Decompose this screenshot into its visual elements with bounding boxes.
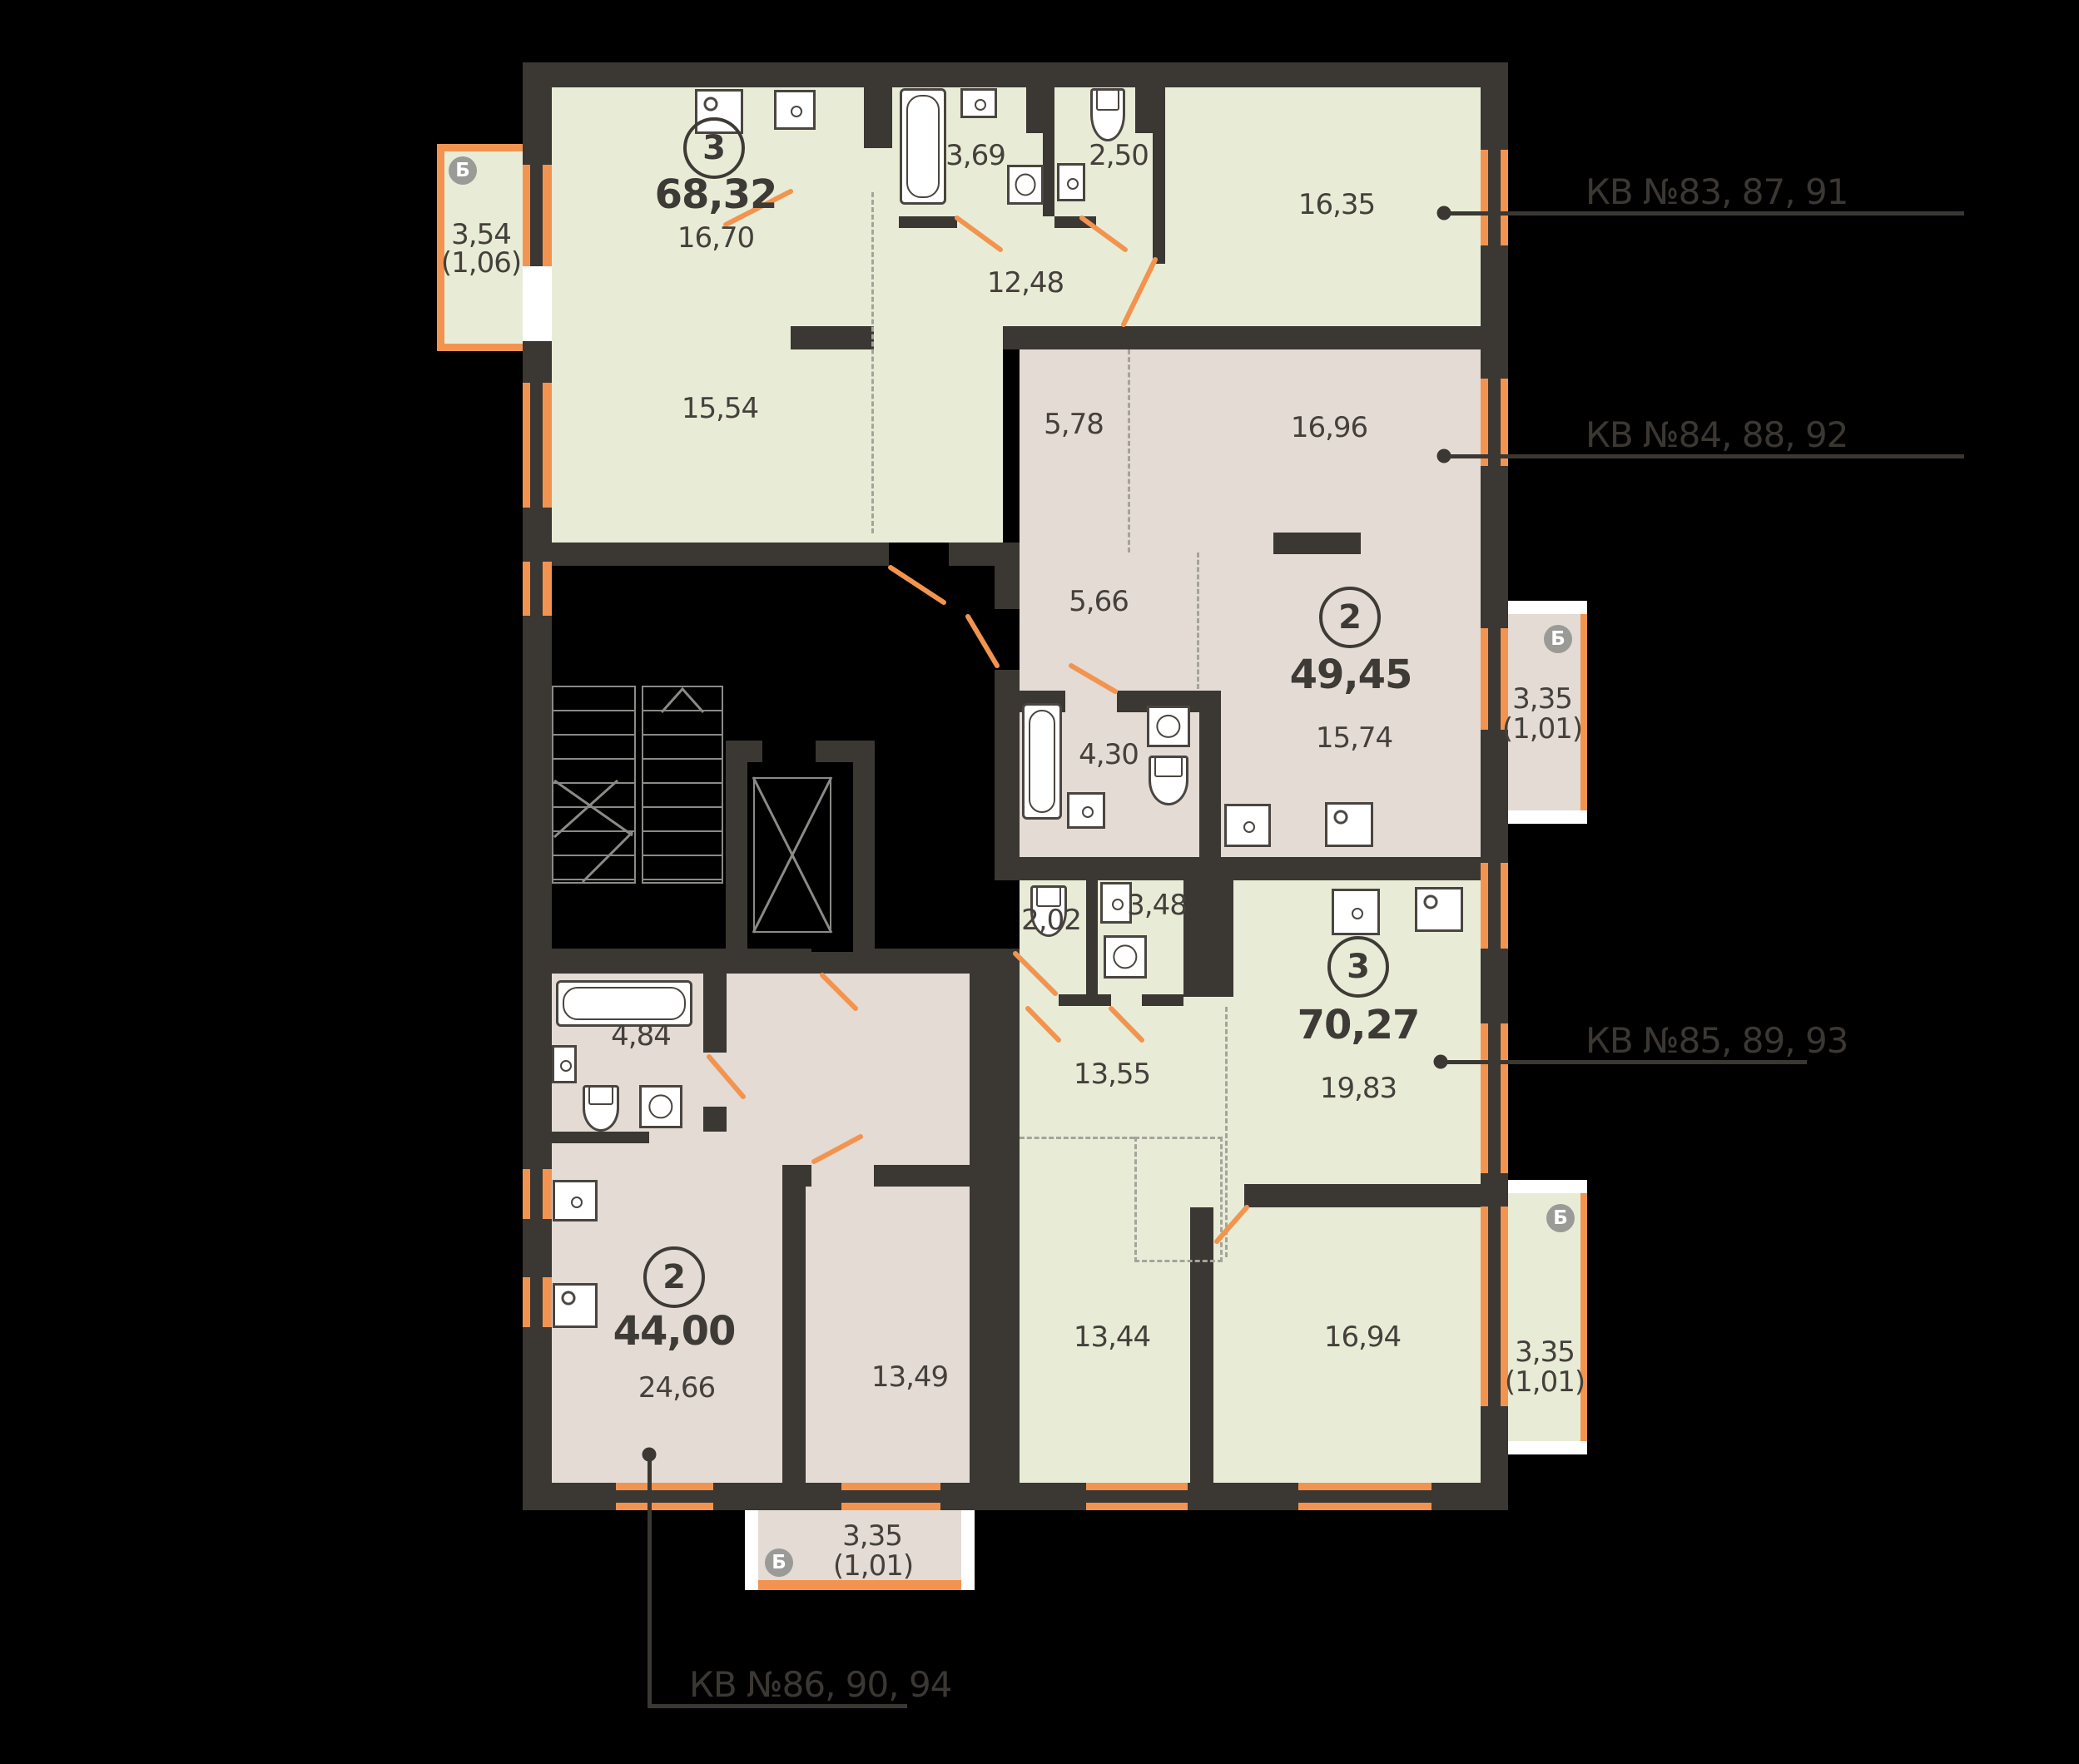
callout-apartments-83-87-91: КВ №83, 87, 91 bbox=[1585, 171, 1848, 212]
room-label: 4,30 bbox=[1079, 738, 1139, 771]
callout-apartments-86-90-94: КВ №86, 90, 94 bbox=[689, 1664, 951, 1705]
floor-plan: Б 3,54 (1,06) Б 3,35 (1,01) Б 3,35 (1,01… bbox=[0, 0, 2079, 1764]
room-label: 5,78 bbox=[1044, 408, 1104, 441]
room-label: 5,66 bbox=[1069, 585, 1129, 618]
room-label: 16,70 bbox=[677, 221, 754, 255]
apartment-area-a4: 44,00 bbox=[613, 1308, 736, 1355]
door-swing-lines bbox=[0, 0, 2079, 1764]
room-label: 15,54 bbox=[682, 392, 758, 425]
room-label: 3,48 bbox=[1127, 889, 1187, 922]
callout-apartments-84-88-92: КВ №84, 88, 92 bbox=[1585, 414, 1848, 455]
apartment-area-a2: 49,45 bbox=[1290, 652, 1412, 698]
room-label: 16,35 bbox=[1298, 188, 1375, 221]
apartment-rooms-badge-a2: 2 bbox=[1319, 587, 1381, 648]
room-label: 16,94 bbox=[1324, 1321, 1401, 1354]
room-label: 13,55 bbox=[1074, 1058, 1150, 1091]
room-label: 16,96 bbox=[1291, 411, 1367, 444]
room-label: 3,69 bbox=[945, 139, 1005, 172]
apartment-rooms-badge-a3: 3 bbox=[1327, 936, 1389, 998]
apartment-area-a1: 68,32 bbox=[655, 171, 777, 218]
room-label: 15,74 bbox=[1316, 721, 1392, 755]
room-label: 13,44 bbox=[1074, 1321, 1150, 1354]
room-label: 12,48 bbox=[987, 266, 1064, 300]
room-label: 2,50 bbox=[1089, 139, 1149, 172]
apartment-area-a3: 70,27 bbox=[1298, 1002, 1420, 1048]
room-label: 2,02 bbox=[1021, 904, 1081, 937]
apartment-rooms-badge-a1: 3 bbox=[683, 117, 745, 179]
room-label: 13,49 bbox=[871, 1360, 948, 1394]
callout-apartments-85-89-93: КВ №85, 89, 93 bbox=[1585, 1020, 1848, 1061]
room-label: 19,83 bbox=[1320, 1072, 1397, 1105]
room-label: 24,66 bbox=[638, 1371, 715, 1405]
callout-line bbox=[648, 1454, 652, 1707]
room-label: 4,84 bbox=[611, 1019, 671, 1053]
apartment-rooms-badge-a4: 2 bbox=[643, 1246, 705, 1308]
